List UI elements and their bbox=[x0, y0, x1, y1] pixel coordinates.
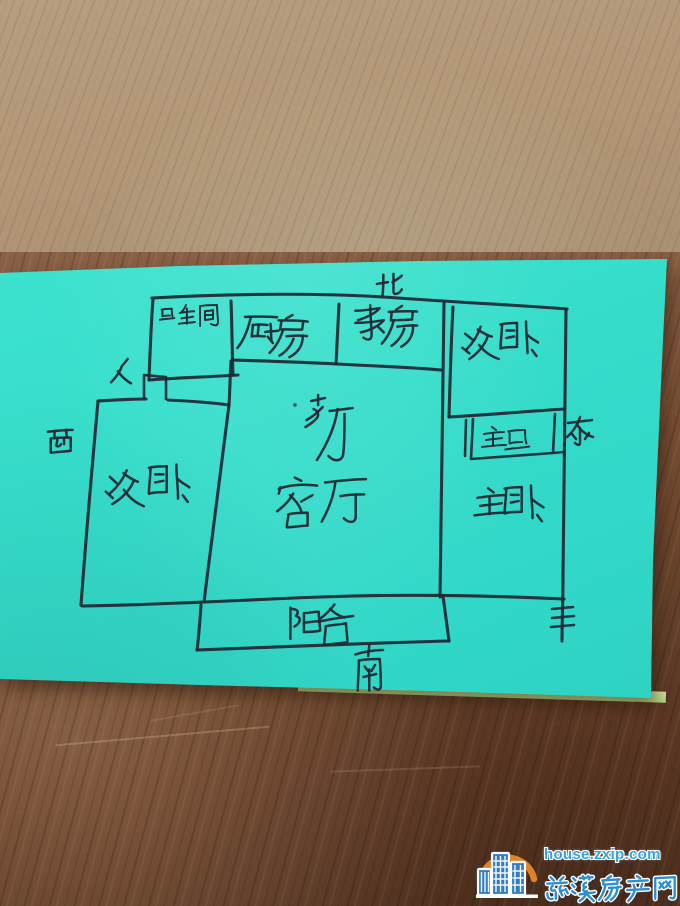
label-south bbox=[355, 646, 383, 691]
label-balcony bbox=[290, 604, 353, 645]
label-bedroom-west bbox=[105, 465, 189, 507]
label-master-bathroom bbox=[482, 427, 529, 450]
master-bath-box bbox=[465, 414, 564, 459]
label-entry-door bbox=[111, 359, 131, 383]
wall-right-outer bbox=[562, 309, 566, 641]
label-bathroom bbox=[160, 305, 218, 326]
wall-living-left-upper bbox=[229, 361, 231, 405]
label-dining bbox=[305, 395, 352, 460]
wall-west-bedroom-left bbox=[81, 401, 98, 605]
watermark-domain-text: house.zxip.com bbox=[544, 846, 661, 863]
wall-kitchen-study-divider bbox=[336, 304, 339, 364]
wall-balcony-left bbox=[197, 605, 201, 650]
floor-plan-labels bbox=[48, 274, 593, 691]
wall-balcony-right bbox=[443, 596, 449, 641]
watermark-site-name bbox=[547, 876, 674, 901]
wall-balcony-bottom bbox=[197, 641, 449, 650]
label-west bbox=[48, 430, 73, 453]
wall-west-bedroom-top-a bbox=[98, 399, 146, 401]
wall-top bbox=[152, 294, 567, 309]
label-kitchen bbox=[237, 313, 309, 359]
wall-ne-bedroom-left bbox=[449, 307, 453, 417]
watermark-logo-icon bbox=[476, 853, 538, 898]
floor-plan-sketch bbox=[0, 0, 680, 906]
label-bedroom-northeast bbox=[462, 322, 538, 360]
label-east bbox=[567, 417, 593, 445]
label-study bbox=[355, 305, 418, 348]
wall-west-bedroom-top-b bbox=[168, 400, 229, 405]
ink-dot bbox=[293, 403, 296, 406]
wall-living-right bbox=[440, 303, 444, 597]
wall-bottom-long bbox=[82, 595, 564, 606]
wall-west-bedroom-right bbox=[204, 405, 229, 602]
wall-ne-bedroom-bottom bbox=[449, 409, 564, 417]
label-master-bedroom bbox=[475, 486, 544, 522]
label-living-room bbox=[277, 478, 366, 528]
watermark: house.zxip.com bbox=[468, 843, 680, 906]
photo-floorplan-on-sticky-note: house.zxip.com bbox=[0, 0, 680, 906]
label-north bbox=[377, 274, 402, 296]
logo-base-line bbox=[476, 895, 538, 899]
wall-bathroom-left bbox=[149, 299, 153, 380]
